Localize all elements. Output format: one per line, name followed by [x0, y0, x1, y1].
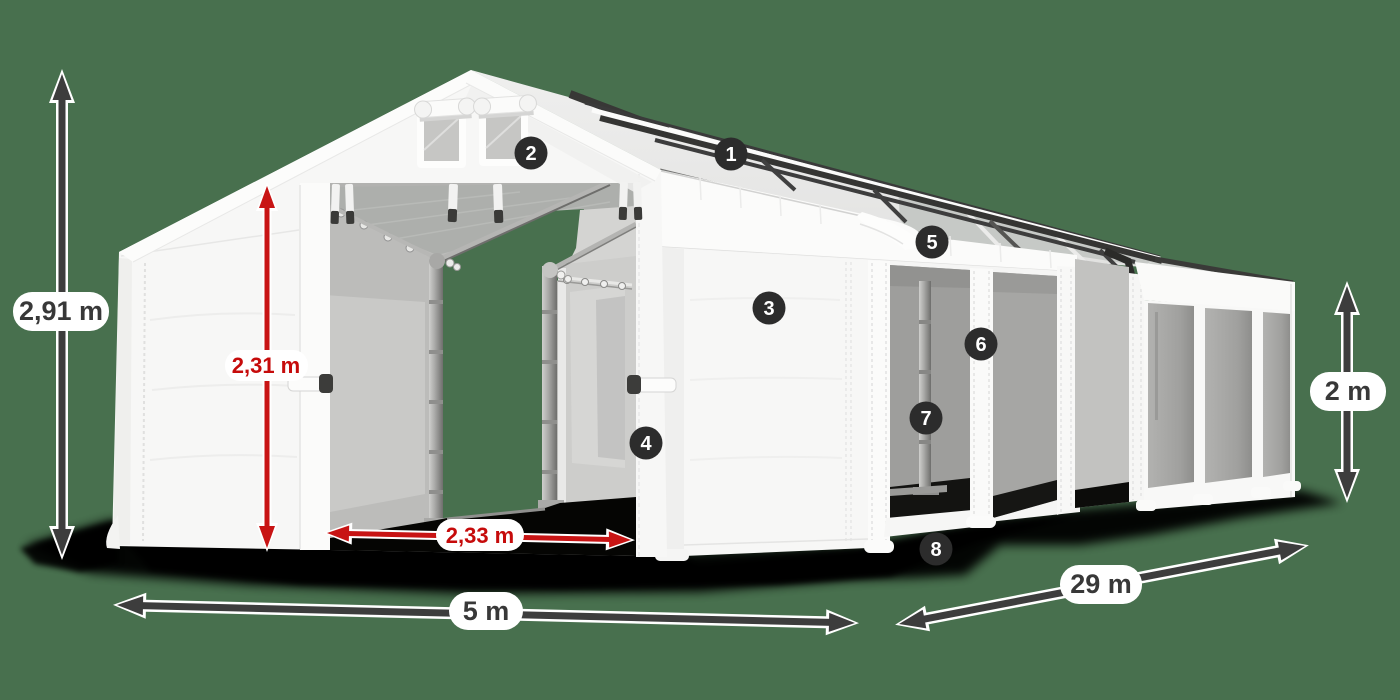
svg-text:2: 2: [525, 143, 536, 165]
svg-text:29 m: 29 m: [1070, 569, 1132, 599]
svg-text:2,33 m: 2,33 m: [446, 523, 515, 548]
svg-text:2,31 m: 2,31 m: [232, 353, 301, 378]
svg-text:5 m: 5 m: [463, 596, 510, 626]
svg-text:1: 1: [725, 144, 736, 166]
svg-text:4: 4: [640, 433, 652, 455]
svg-text:2 m: 2 m: [1325, 376, 1372, 406]
svg-text:2,91 m: 2,91 m: [19, 296, 103, 326]
svg-text:7: 7: [920, 408, 931, 430]
svg-text:3: 3: [763, 298, 774, 320]
svg-text:5: 5: [926, 232, 937, 254]
svg-text:8: 8: [930, 539, 941, 561]
svg-text:6: 6: [975, 334, 986, 356]
